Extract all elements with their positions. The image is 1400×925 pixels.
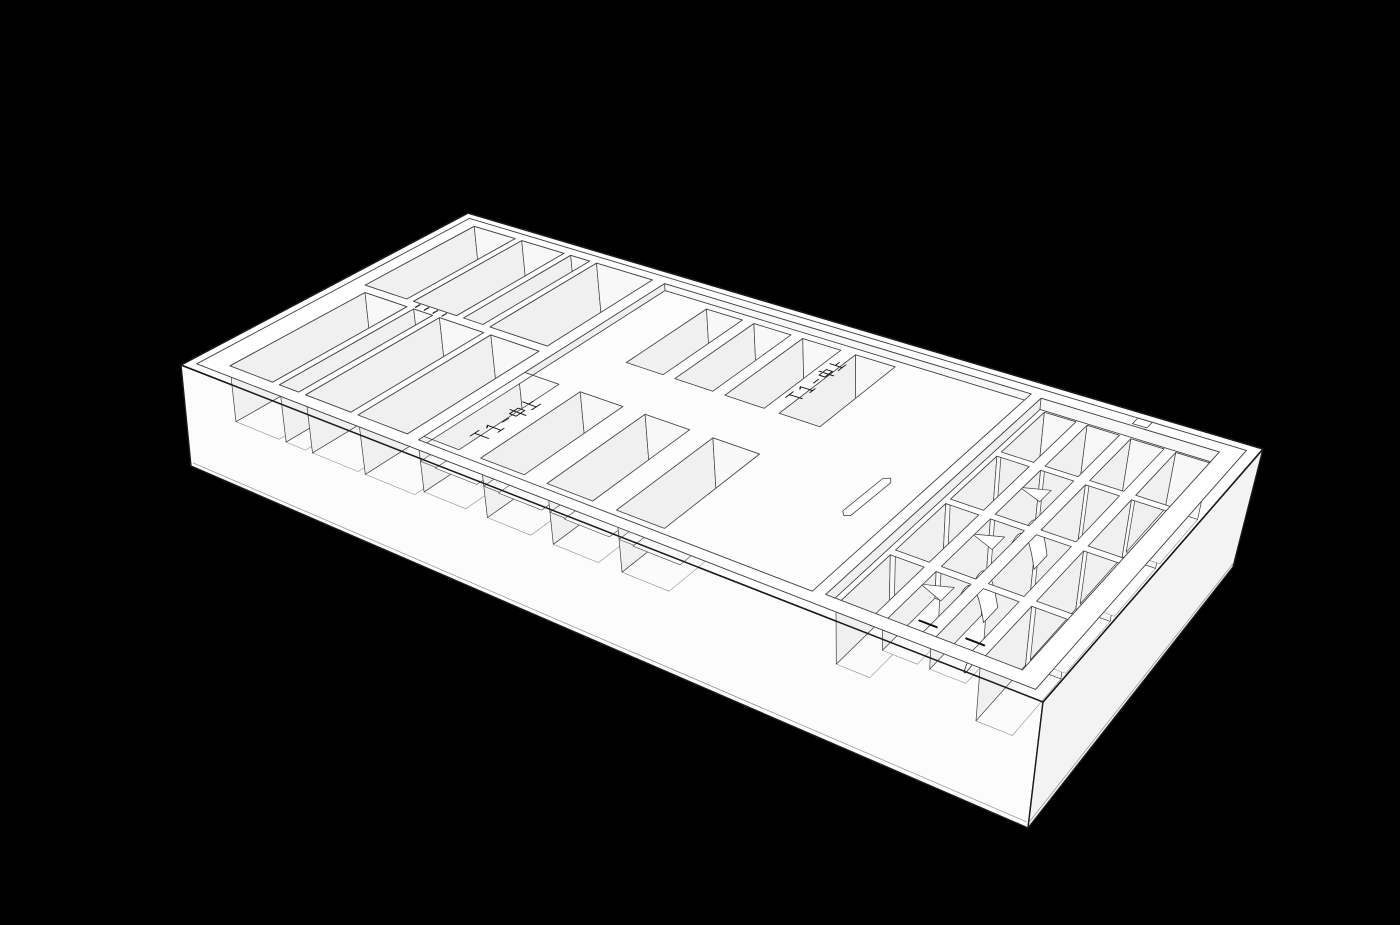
tray-insert-3d-render [0, 0, 1400, 925]
render-stage [0, 0, 1400, 925]
